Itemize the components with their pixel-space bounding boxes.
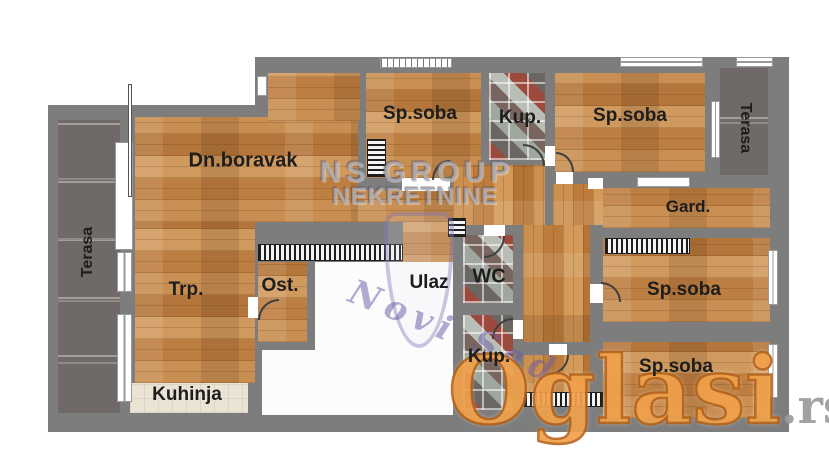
room-label-bedroom-bottom-right: Sp.soba: [639, 356, 713, 378]
pantry-floor: [258, 262, 307, 342]
room-label-bedroom-mid-right: Sp.soba: [647, 279, 721, 301]
door-gap: [248, 297, 258, 318]
living-room-floor-notch: [268, 73, 360, 121]
room-label-wc: WC: [472, 266, 505, 289]
corridor-top-right-floor: [553, 184, 603, 225]
window: [768, 250, 778, 305]
agency-watermark-line2: NEKRETNINE: [332, 183, 498, 211]
window: [380, 58, 452, 68]
window-fin: [128, 84, 132, 197]
window: [257, 76, 267, 96]
pantry-wall-bottom: [255, 342, 315, 350]
room-label-wardrobe: Gard.: [666, 197, 710, 217]
door-gap: [588, 178, 603, 189]
window: [117, 252, 132, 292]
terrace-joint: [58, 300, 120, 302]
room-label-terrace-left: Terasa: [79, 227, 97, 277]
window: [711, 101, 720, 158]
window: [736, 57, 773, 67]
terrace-joint: [58, 362, 120, 364]
room-label-bedroom-top-left: Sp.soba: [383, 103, 457, 125]
window: [117, 314, 132, 402]
portal-tld: .rs: [781, 379, 829, 435]
room-label-bath-top: Kup.: [499, 107, 541, 129]
room-label-bath-bottom: Kup.: [468, 346, 510, 368]
pantry-wall-right: [307, 262, 315, 350]
room-label-dining: Trp.: [169, 279, 204, 301]
room-label-terrace-right: Terasa: [736, 103, 754, 153]
room-label-living: Dn.boravak: [189, 150, 298, 173]
door-gap: [556, 172, 573, 184]
room-label-pantry: Ost.: [262, 275, 299, 297]
dining-floor: [135, 222, 255, 383]
balcony-door-sill: [637, 177, 690, 187]
terrace-joint: [58, 178, 120, 180]
window: [620, 57, 703, 67]
door-gap: [545, 146, 555, 166]
room-label-bedroom-top-right: Sp.soba: [593, 105, 667, 127]
room-label-entry: Ulaz: [409, 272, 448, 294]
room-label-kitchen: Kuhinja: [152, 384, 222, 406]
wardrobe-hatch: [258, 244, 403, 261]
floor-plan: NS GROUP NEKRETNINE Novi Sad Oglasi.rs D…: [0, 0, 829, 473]
door-gap: [484, 225, 505, 236]
wardrobe-hatch: [605, 238, 690, 254]
